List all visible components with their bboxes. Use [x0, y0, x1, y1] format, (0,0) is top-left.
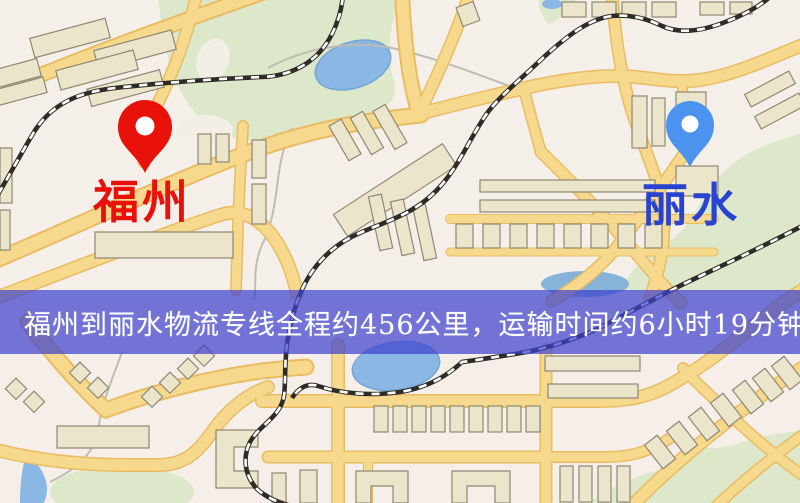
map-canvas[interactable]: 福州 丽水 福州到丽水物流专线全程约456公里，运输时间约6小时19分钟. [0, 0, 800, 503]
map-art: 福州 丽水 [0, 0, 800, 503]
origin-label: 福州 [92, 175, 191, 229]
route-info-text: 福州到丽水物流专线全程约456公里，运输时间约6小时19分钟. [0, 303, 800, 342]
destination-label: 丽水 [642, 178, 740, 232]
route-info-banner: 福州到丽水物流专线全程约456公里，运输时间约6小时19分钟. [0, 290, 800, 354]
